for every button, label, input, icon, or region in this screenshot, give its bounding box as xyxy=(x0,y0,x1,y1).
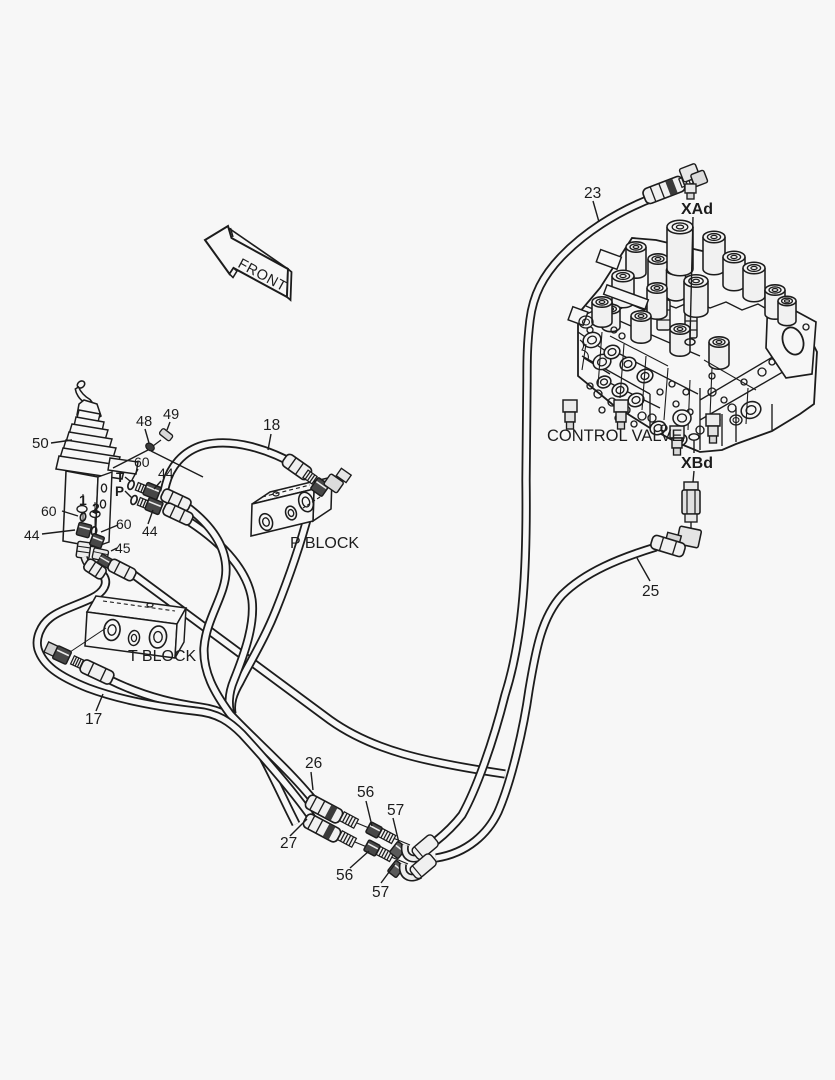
svg-text:60: 60 xyxy=(116,516,132,532)
svg-text:48: 48 xyxy=(136,414,152,430)
svg-text:T: T xyxy=(116,470,125,485)
svg-text:2: 2 xyxy=(92,500,100,516)
svg-text:44: 44 xyxy=(142,523,158,539)
svg-text:XBd: XBd xyxy=(681,455,713,472)
svg-text:44: 44 xyxy=(24,527,40,543)
svg-text:T BLOCK: T BLOCK xyxy=(128,648,197,665)
svg-text:27: 27 xyxy=(280,835,297,852)
svg-text:49: 49 xyxy=(163,407,179,423)
svg-text:23: 23 xyxy=(584,185,601,202)
svg-text:57: 57 xyxy=(372,884,389,901)
svg-text:25: 25 xyxy=(642,583,659,600)
svg-text:60: 60 xyxy=(134,454,150,470)
svg-text:56: 56 xyxy=(336,867,353,884)
svg-text:44: 44 xyxy=(158,465,174,481)
svg-text:50: 50 xyxy=(32,435,49,452)
svg-text:P: P xyxy=(115,484,124,499)
svg-text:P BLOCK: P BLOCK xyxy=(290,535,359,552)
svg-text:57: 57 xyxy=(387,802,404,819)
svg-text:45: 45 xyxy=(115,540,131,556)
svg-text:XAd: XAd xyxy=(681,201,713,218)
svg-text:CONTROL VALVE: CONTROL VALVE xyxy=(547,427,682,445)
svg-text:60: 60 xyxy=(41,503,57,519)
svg-text:26: 26 xyxy=(305,755,322,772)
svg-text:56: 56 xyxy=(357,784,374,801)
svg-text:17: 17 xyxy=(85,711,102,728)
svg-text:18: 18 xyxy=(263,417,280,434)
